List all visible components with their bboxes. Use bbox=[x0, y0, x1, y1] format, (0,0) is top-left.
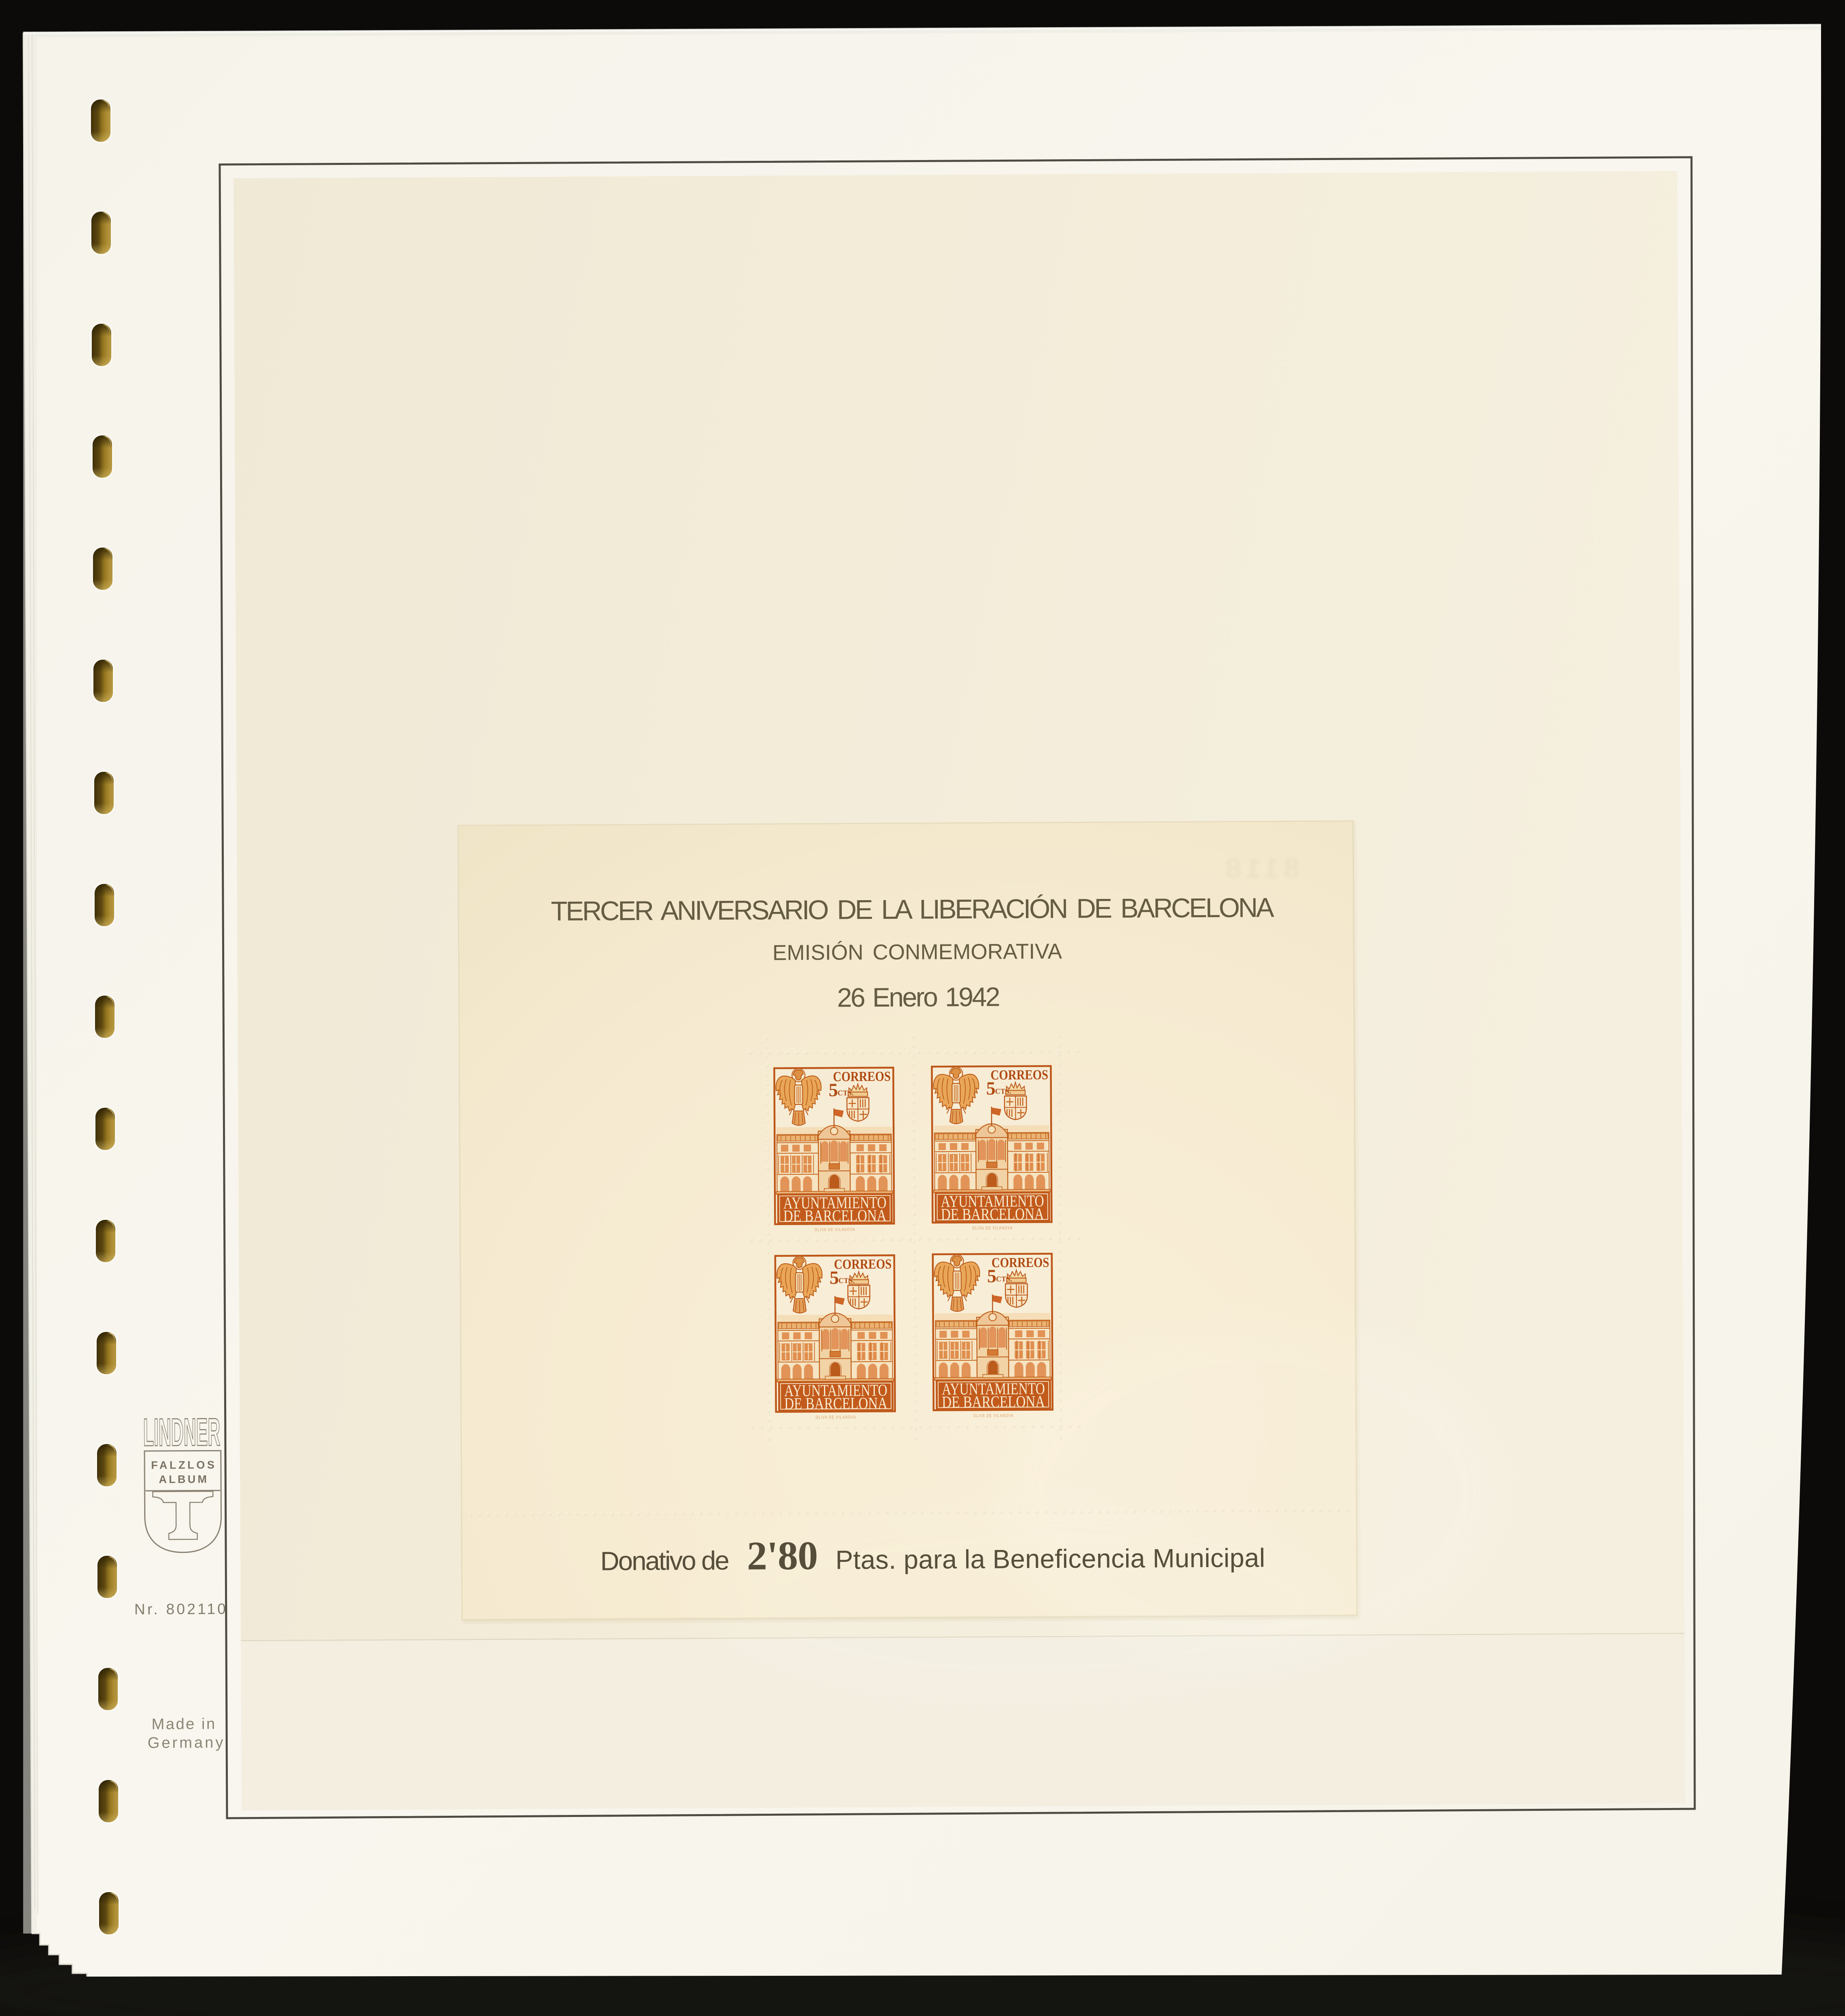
svg-text:LINDNER: LINDNER bbox=[143, 1411, 220, 1455]
svg-text:TERCER ANIVERSARIO DE LA LIBER: TERCER ANIVERSARIO DE LA LIBERACIÓN DE B… bbox=[551, 892, 1274, 927]
svg-text:EMISIÓN CONMEMORATIVA: EMISIÓN CONMEMORATIVA bbox=[772, 940, 1062, 965]
svg-text:Ptas. para la Beneficencia Mun: Ptas. para la Beneficencia Municipal bbox=[835, 1543, 1265, 1574]
svg-text:Nr. 802110: Nr. 802110 bbox=[134, 1600, 227, 1618]
svg-text:2'80: 2'80 bbox=[747, 1533, 818, 1579]
svg-text:8118: 8118 bbox=[1221, 852, 1299, 884]
svg-text:Germany: Germany bbox=[147, 1734, 223, 1752]
svg-text:ALBUM: ALBUM bbox=[159, 1473, 207, 1485]
svg-text:26 Enero 1942: 26 Enero 1942 bbox=[837, 981, 1000, 1012]
svg-text:Donativo de: Donativo de bbox=[600, 1546, 729, 1576]
